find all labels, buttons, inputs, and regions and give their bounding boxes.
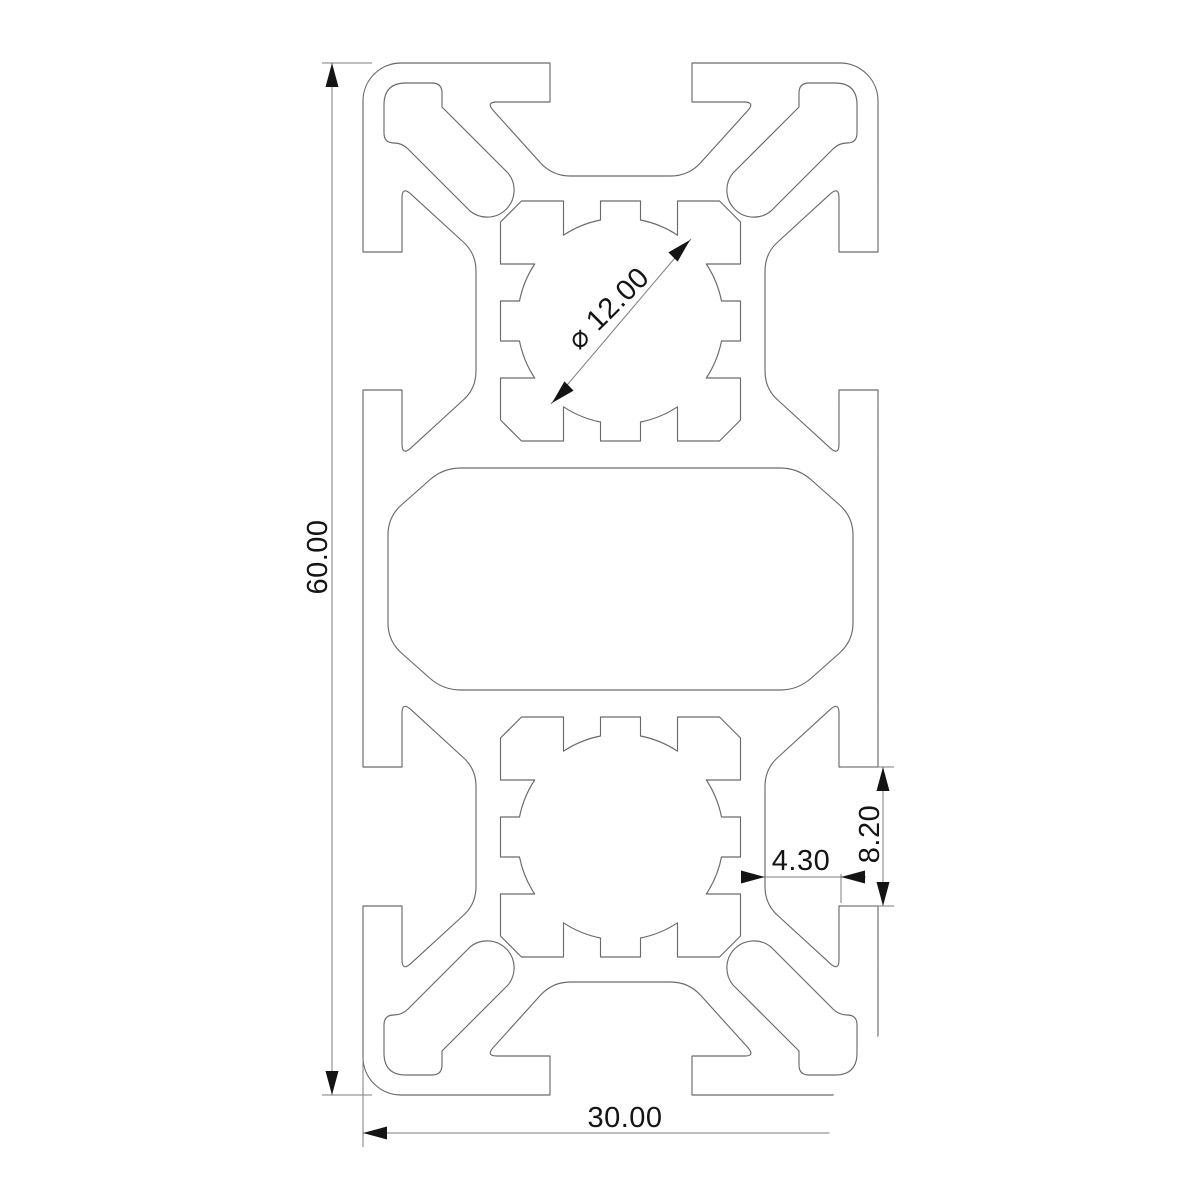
corner-slot-top-left (384, 83, 514, 217)
dim-slot-neck-label: 4.30 (772, 845, 830, 877)
bore-chamber-bottom (501, 717, 741, 957)
dimension-slot-neck-arrow-left (741, 871, 765, 884)
dim-bore-diameter-label: ⌀ 12.00 (561, 261, 655, 355)
dimension-slot-neck-arrow-right (841, 871, 865, 884)
corner-slot-top-right (727, 83, 857, 217)
corner-slot-bottom-left (384, 941, 514, 1075)
central-cavity (388, 468, 853, 690)
corner-break-mask (827, 1026, 960, 1175)
dimension-width-arrow-left (363, 1127, 387, 1140)
dim-width-label: 30.00 (587, 1102, 662, 1134)
dimension-width: 30.00 (363, 1058, 858, 1147)
dimension-bore-diameter: ⌀ 12.00 (551, 239, 691, 404)
dimension-bore-arrow-lower (552, 381, 574, 403)
dimension-bore-arrow-upper (668, 240, 690, 262)
dimension-height-arrow-top (326, 63, 339, 87)
profile-drawing-canvas: 60.00 30.00 ⌀ 12.00 4.30 8.20 (0, 0, 1200, 1200)
dimension-slot-opening: 8.20 (841, 767, 894, 906)
profile-outer-outline (363, 63, 878, 1095)
dimension-height: 60.00 (302, 63, 372, 1095)
dimension-height-arrow-bottom (326, 1071, 339, 1095)
dimension-slot-opening-arrow-top (877, 767, 890, 791)
dim-height-label: 60.00 (302, 519, 334, 594)
technical-drawing-page: 60.00 30.00 ⌀ 12.00 4.30 8.20 (0, 0, 1200, 1200)
corner-slot-bottom-right (727, 941, 857, 1075)
dim-slot-opening-label: 8.20 (854, 805, 886, 863)
bore-chamber-top (501, 201, 741, 441)
dimension-slot-opening-arrow-bottom (877, 882, 890, 906)
dimension-slot-neck: 4.30 (741, 845, 866, 903)
extrusion-profile (363, 63, 878, 1095)
